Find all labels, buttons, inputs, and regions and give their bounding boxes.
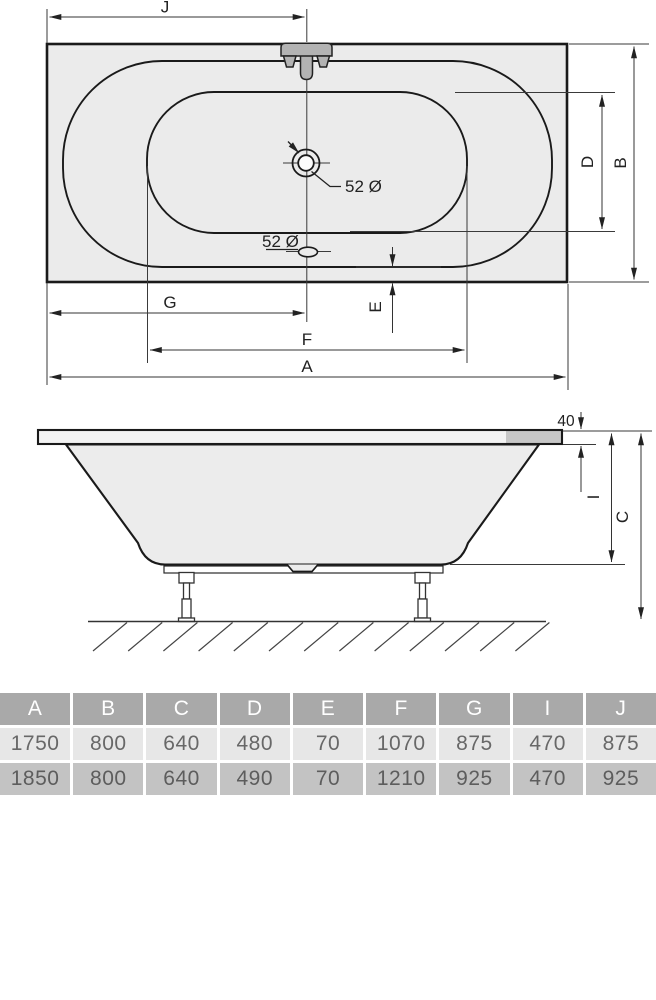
table-row: 1750800640480701070875470875 [0,728,656,760]
bathtub-side-view: 40 I C [38,412,652,651]
table-cell: 800 [73,763,143,795]
table-header-cell: F [366,693,436,725]
rim-fill [38,430,562,444]
faucet-handle-right [317,56,330,67]
table-cell: 70 [293,728,363,760]
hatch-line [199,623,233,652]
table-cell: 1850 [0,763,70,795]
tub-shell [66,445,539,565]
ground-hatching [93,623,549,652]
faucet-handle-left [284,56,297,67]
dim-label-j: J [161,0,170,17]
table-cell: 70 [293,763,363,795]
dim-label-a: A [301,357,313,376]
table-cell: 470 [513,728,583,760]
technical-drawing: 52 Ø 52 Ø J G F [0,0,656,690]
dim-j: J [47,0,307,43]
table-cell: 800 [73,728,143,760]
hatch-line [375,623,409,652]
dim-rim-thickness: 40 [557,412,652,492]
table-header-cell: D [220,693,290,725]
hatch-line [339,623,373,652]
table-header-cell: A [0,693,70,725]
dimension-table: ABCDEFGIJ 1750800640480701070875470875 1… [0,693,656,795]
bathtub-dimension-sheet: { "drawing": { "dims": { "J":"J", "G":"G… [0,0,656,1000]
hatch-line [515,623,549,652]
table-header-cell: I [513,693,583,725]
table-cell: 925 [439,763,509,795]
bathtub-top-view: 52 Ø 52 Ø J G F [47,0,649,390]
table-header-cell: J [586,693,656,725]
overflow-diameter-label: 52 Ø [262,232,299,251]
table-cell: 640 [146,728,216,760]
table-cell: 470 [513,763,583,795]
hatch-line [304,623,338,652]
table-row: 1850800640490701210925470925 [0,763,656,795]
table-header-cell: B [73,693,143,725]
table-cell: 1210 [366,763,436,795]
hatch-line [480,623,514,652]
leg-right [415,573,431,622]
table-cell: 640 [146,763,216,795]
bottom-drain-notch [287,565,318,572]
hatch-line [163,623,197,652]
hatch-line [269,623,303,652]
dim-label-c: C [613,511,632,523]
dim-label-b: B [611,157,630,168]
table-cell: 875 [586,728,656,760]
rim-section-gray [506,431,561,443]
dim-label-i: I [584,495,603,500]
table-header-cell: C [146,693,216,725]
table-cell: 925 [586,763,656,795]
dim-g: G [50,293,305,313]
faucet-base [281,43,332,56]
table-cell: 875 [439,728,509,760]
hatch-line [445,623,479,652]
dim-label-g: G [163,293,176,312]
table-header-cell: G [439,693,509,725]
dim-label-f: F [302,330,312,349]
table-cell: 480 [220,728,290,760]
leg-left [179,573,195,622]
rim-thickness-label: 40 [557,413,575,430]
dim-label-d: D [578,156,597,168]
hatch-line [410,623,444,652]
dim-label-e: E [366,301,385,312]
hatch-line [234,623,268,652]
hatch-line [128,623,162,652]
table-cell: 490 [220,763,290,795]
table-header-cell: E [293,693,363,725]
table-cell: 1750 [0,728,70,760]
hatch-line [93,623,127,652]
drain-diameter-label: 52 Ø [345,177,382,196]
table-header-row: ABCDEFGIJ [0,693,656,725]
table-cell: 1070 [366,728,436,760]
dim-c: C [613,434,641,620]
